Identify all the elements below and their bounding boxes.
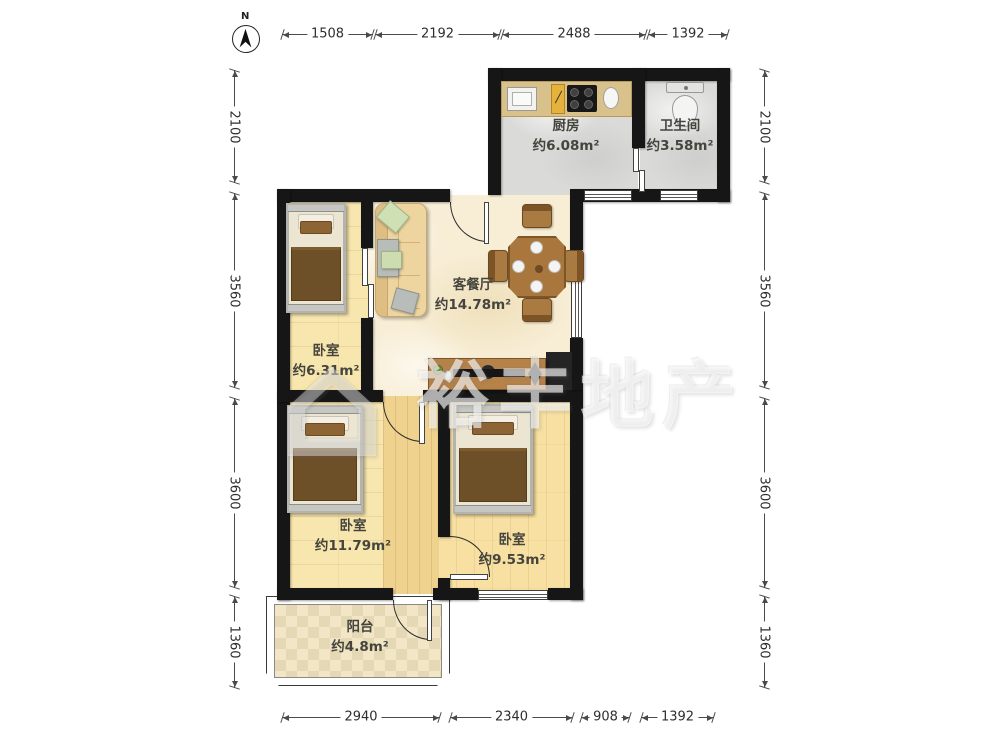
bed-pillow-brown (300, 221, 331, 234)
dim-arrow (762, 381, 768, 387)
dim-arrow (433, 715, 439, 721)
burner (584, 100, 593, 109)
bedroom-mid-door-leaf (450, 574, 488, 580)
bed-headboard (455, 406, 531, 413)
dimension-left-1: 2100 (226, 70, 242, 183)
dim-arrow (232, 381, 238, 387)
bedroom-mid-window (478, 590, 548, 600)
dim-arrow (566, 715, 572, 721)
kitchen-window (584, 190, 632, 201)
room-name: 卧室 (462, 531, 562, 551)
dim-arrow (721, 32, 727, 38)
dim-arrow (649, 32, 655, 38)
dimension-right-1: 2100 (756, 70, 772, 183)
dim-value: 1392 (667, 27, 708, 42)
room-area: 约4.8m² (310, 638, 410, 658)
decor-oval (444, 370, 452, 381)
dim-arrow (283, 715, 289, 721)
dim-value: 2488 (553, 27, 594, 42)
room-name: 卧室 (303, 517, 403, 537)
dim-arrow (623, 715, 629, 721)
dining-chair (522, 204, 552, 228)
bed-small-icon (286, 203, 346, 313)
tv-stand (428, 358, 546, 390)
dim-value: 3560 (757, 270, 772, 311)
wall-mid-left (277, 390, 383, 402)
wall-kitchen-left (488, 68, 501, 195)
room-name: 客餐厅 (413, 276, 533, 296)
compass-north-label: N (241, 11, 249, 22)
bed-pillow-brown (305, 423, 346, 436)
dim-value: 908 (589, 710, 622, 725)
toilet-tank (666, 82, 704, 93)
wall-bottom-left (277, 588, 393, 600)
dim-arrow (376, 32, 382, 38)
wall-bottom-mid (433, 588, 478, 600)
speaker-icon (528, 362, 542, 386)
room-area: 约6.08m² (516, 137, 616, 157)
bedroom-small-slide-door-panel (368, 284, 374, 318)
wall-tv (423, 390, 583, 402)
table-center (535, 265, 543, 273)
dim-value: 3560 (227, 270, 242, 311)
dim-arrow (762, 176, 768, 182)
dim-arrow (366, 32, 372, 38)
wall-bottom-right (548, 588, 583, 600)
room-label-bedroom-small: 卧室 约6.31m² (276, 342, 376, 381)
bed-footboard (455, 505, 531, 512)
bed-pillow-brown (472, 422, 515, 435)
room-name: 卧室 (276, 342, 376, 362)
dim-arrow (232, 681, 238, 687)
room-label-bedroom-large: 卧室 约11.79m² (303, 517, 403, 556)
dimension-top-3: 2488 (502, 26, 646, 42)
wall-right-lower (570, 402, 583, 600)
room-label-bedroom-mid: 卧室 约9.53m² (462, 531, 562, 570)
bed-headboard (289, 407, 361, 414)
dimension-left-4: 1360 (226, 596, 242, 688)
bed-footboard (288, 304, 344, 311)
dim-arrow (232, 399, 238, 405)
room-label-kitchen: 厨房 约6.08m² (516, 117, 616, 156)
dimension-bottom-2: 2340 (450, 709, 573, 725)
bedroom-large-door-leaf (419, 402, 425, 444)
dim-arrow (232, 581, 238, 587)
dimension-left-2: 3560 (226, 193, 242, 388)
chair-back (523, 315, 551, 321)
dim-value: 2100 (227, 106, 242, 147)
dim-arrow (762, 399, 768, 405)
north-arrow-icon (235, 28, 256, 49)
plate-icon (530, 241, 543, 254)
dim-value: 2192 (417, 27, 458, 42)
wall-bedroom-divider-upper (438, 402, 450, 537)
wall-top-kitchen-bath (488, 68, 730, 81)
chair-back (577, 251, 583, 281)
room-area: 约14.78m² (413, 296, 533, 316)
room-area: 约3.58m² (628, 137, 732, 157)
bathroom-slide-door-panel (639, 170, 645, 192)
room-area: 约6.31m² (276, 362, 376, 382)
dim-arrow (232, 597, 238, 603)
cutting-board-icon (551, 84, 565, 114)
bed-large-icon (287, 405, 363, 513)
dim-value: 3600 (227, 472, 242, 513)
sink-icon (507, 87, 537, 111)
dim-arrow (232, 194, 238, 200)
dim-arrow (232, 71, 238, 77)
dim-arrow (707, 715, 713, 721)
dim-value: 2940 (340, 710, 381, 725)
dim-value: 3600 (757, 472, 772, 513)
room-label-living: 客餐厅 约14.78m² (413, 276, 533, 315)
dim-value: 2340 (491, 710, 532, 725)
dim-arrow (582, 715, 588, 721)
room-label-bathroom: 卫生间 约3.58m² (628, 117, 732, 156)
dim-arrow (283, 32, 289, 38)
dim-value: 2100 (757, 106, 772, 147)
dim-arrow (642, 715, 648, 721)
bathroom-window (660, 190, 698, 201)
dimension-top-4: 1392 (648, 26, 728, 42)
room-name: 厨房 (516, 117, 616, 137)
dining-chair (564, 250, 584, 282)
sink-basin (512, 92, 532, 106)
room-area: 约11.79m² (303, 537, 403, 557)
dimension-right-4: 1360 (756, 596, 772, 688)
wall-right-upper (570, 202, 583, 250)
plant-icon (433, 365, 443, 375)
dim-arrow (762, 681, 768, 687)
bedroom-small-slide-door-panel (362, 248, 368, 286)
dim-arrow (762, 194, 768, 200)
bed-blanket (291, 247, 341, 301)
dimension-top-2: 2192 (375, 26, 500, 42)
dimension-top-1: 1508 (282, 26, 373, 42)
tv-icon (453, 369, 525, 377)
wall-bedroom-small-right-upper (361, 202, 373, 248)
chair-back (523, 205, 551, 211)
dim-value: 1360 (227, 621, 242, 662)
wall-living-top (277, 189, 450, 202)
dimension-bottom-4: 1392 (641, 709, 714, 725)
bed-blanket (459, 448, 527, 502)
dim-value: 1392 (657, 710, 698, 725)
entrance-door-leaf (484, 202, 489, 244)
room-name: 卫生间 (628, 117, 732, 137)
compass-icon (232, 25, 260, 53)
dim-arrow (639, 32, 645, 38)
sofa-pillow-green (381, 251, 402, 269)
dim-arrow (451, 715, 457, 721)
dimension-bottom-1: 2940 (282, 709, 440, 725)
bed-footboard (289, 504, 361, 511)
balcony-door-leaf (427, 600, 432, 641)
room-area: 约9.53m² (462, 551, 562, 571)
bed-headboard (288, 205, 344, 212)
burner (584, 88, 593, 97)
dim-arrow (232, 176, 238, 182)
plate-icon (548, 260, 561, 273)
dim-arrow (762, 581, 768, 587)
stove-icon (567, 85, 597, 112)
burner (570, 88, 579, 97)
bed-blanket (293, 448, 357, 501)
plate-icon (512, 260, 525, 273)
toilet-button (684, 86, 688, 90)
dim-arrow (503, 32, 509, 38)
basin-icon (603, 87, 619, 109)
dimension-bottom-3: 908 (581, 709, 630, 725)
bed-mid-icon (453, 404, 533, 514)
dim-arrow (762, 597, 768, 603)
dim-value: 1508 (307, 27, 348, 42)
dim-value: 1360 (757, 621, 772, 662)
dimension-right-3: 3600 (756, 398, 772, 588)
room-label-balcony: 阳台 约4.8m² (310, 618, 410, 657)
burner (570, 100, 579, 109)
structural-column (546, 352, 572, 390)
knife-icon (555, 91, 562, 104)
dimension-left-3: 3600 (226, 398, 242, 588)
dim-arrow (762, 71, 768, 77)
floorplan-canvas: N (0, 0, 1000, 750)
room-name: 阳台 (310, 618, 410, 638)
dimension-right-2: 3560 (756, 193, 772, 388)
dim-arrow (493, 32, 499, 38)
